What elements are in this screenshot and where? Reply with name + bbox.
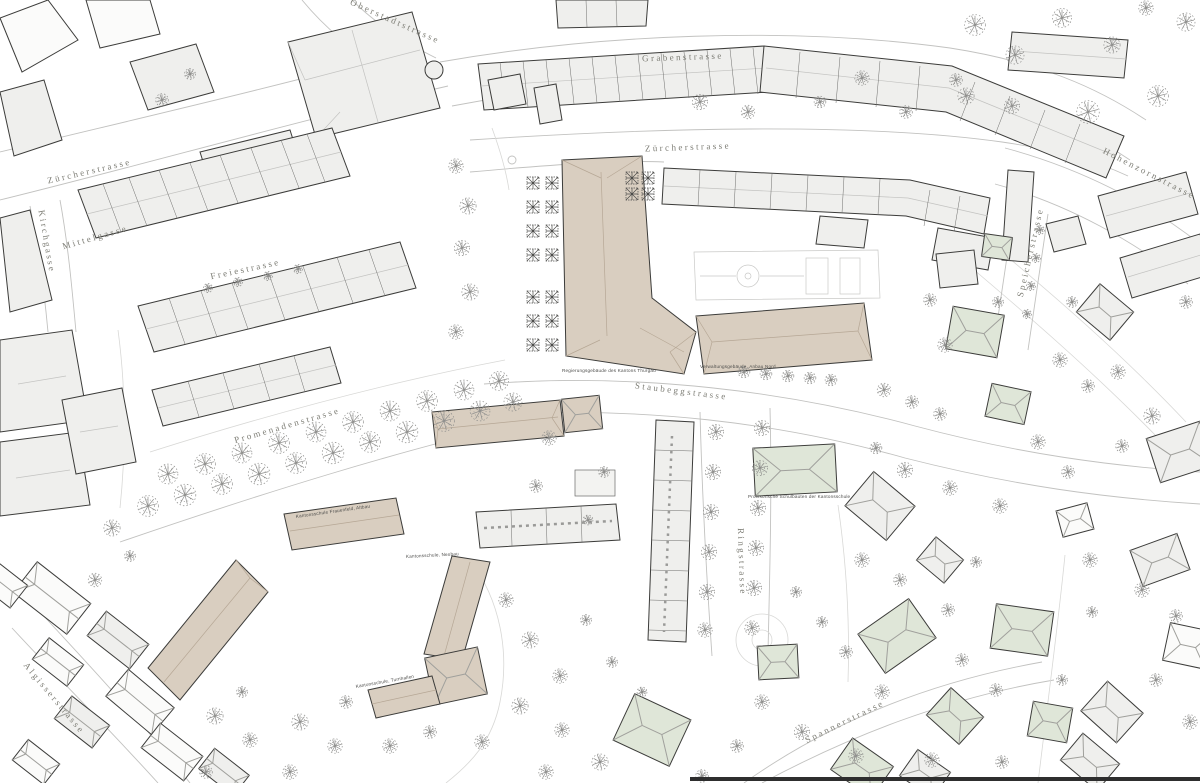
tree-icon (1087, 607, 1098, 618)
tree-icon (934, 408, 947, 421)
tree-icon (449, 159, 463, 173)
school-building (476, 504, 620, 548)
tree-icon (530, 480, 543, 493)
tree-icon (906, 396, 919, 409)
tree-icon (1180, 296, 1193, 309)
tree-icon (581, 615, 592, 626)
tree-icon (158, 464, 178, 484)
tree-icon (539, 765, 553, 779)
tree-icon (343, 412, 364, 433)
street-label-spannerstrasse: Spannerstrasse (803, 698, 886, 745)
tree-icon (104, 520, 120, 536)
tree-icon (1062, 466, 1075, 479)
tree-icon (243, 733, 257, 747)
tree-icon (125, 551, 136, 562)
tree-icon (877, 383, 891, 397)
tree-icon (1031, 435, 1045, 449)
school-building (148, 560, 268, 700)
tree-icon (269, 433, 290, 454)
tree-icon (897, 462, 912, 477)
tree-icon (701, 544, 716, 559)
tree-icon (607, 657, 618, 668)
tree-icon (195, 454, 216, 475)
tree-icon (499, 593, 513, 607)
tree-icon (1116, 440, 1129, 453)
tree-icon (174, 484, 196, 506)
tree-icon (207, 708, 223, 724)
tree-icon (870, 442, 882, 454)
tree-icon (380, 401, 400, 421)
tree-icon (782, 370, 794, 382)
tree-icon (1150, 674, 1163, 687)
tree-icon (956, 654, 969, 667)
caption-regierungsgebaeude: Regierungsgebäude des Kantons Thurgau (562, 368, 656, 373)
tree-icon (383, 739, 397, 753)
pavilion-building (753, 444, 837, 496)
tree-icon (993, 297, 1004, 308)
school-building (284, 498, 404, 550)
tree-icon (396, 421, 418, 443)
east-quarter (613, 172, 1200, 783)
garden-parterre (694, 250, 880, 300)
site-plan: Oberstadtstrasse Grabenstrasse Zürcherst… (0, 0, 1200, 783)
tree-icon (741, 105, 755, 119)
tree-icon (340, 696, 353, 709)
tree-icon (360, 432, 381, 453)
church-apse (425, 61, 443, 79)
graben-row-buildings (478, 0, 1128, 178)
tree-icon (322, 442, 344, 464)
tree-icon (1067, 297, 1078, 308)
street-label-staubeggstrasse: Staubeggstrasse (634, 380, 728, 401)
tree-icon (965, 15, 986, 36)
tree-icon (1139, 1, 1153, 15)
tree-icon (755, 695, 769, 709)
tree-icon (454, 240, 469, 255)
tree-icon (417, 391, 438, 412)
tree-icon (490, 372, 509, 391)
tree-icon (306, 422, 326, 442)
caption-verwaltungsgebaeude: Verwaltungsgebäude, Anbau Nord (700, 364, 776, 369)
tree-icon (475, 735, 489, 749)
tree-icon (699, 584, 714, 599)
tree-icon (88, 573, 102, 587)
old-town-buildings (0, 0, 443, 516)
school-building (432, 400, 564, 448)
tree-icon (817, 617, 828, 628)
tree-icon (703, 504, 718, 519)
tree-icon (1170, 610, 1183, 623)
tree-icon (943, 481, 957, 495)
tree-icon (286, 453, 307, 474)
tree-icon (1023, 310, 1032, 319)
tree-icon (804, 372, 816, 384)
tree-icon (522, 632, 538, 648)
tree-icon (748, 540, 763, 555)
tree-icon (894, 574, 907, 587)
tree-icon (1057, 675, 1068, 686)
tree-icon (449, 325, 463, 339)
traffic-island (508, 156, 516, 164)
tree-icon (692, 94, 707, 109)
plan-border-bar (690, 777, 1200, 781)
tree-icon (460, 198, 476, 214)
tree-icon (1083, 553, 1097, 567)
caption-provisorium: Provisorische Schulbauten der Kantonssch… (748, 494, 851, 499)
tree-icon (454, 380, 474, 400)
street-label-zuercherstrasse: Zürcherstrasse (645, 141, 731, 154)
tree-icon (990, 684, 1003, 697)
tree-icon (993, 499, 1007, 513)
tree-icon (791, 587, 802, 598)
tree-icon (237, 687, 248, 698)
tree-icon (760, 368, 772, 380)
tree-icon (924, 294, 937, 307)
building (0, 0, 78, 72)
tree-icon (283, 765, 297, 779)
tree-icon (840, 646, 853, 659)
tree-icon (731, 740, 744, 753)
tree-icon (138, 496, 159, 517)
tree-icon (745, 621, 759, 635)
zuercherstrasse-south-row (662, 168, 1034, 270)
tree-icon (592, 754, 608, 770)
tree-icon (232, 443, 252, 463)
tree-icon (512, 698, 528, 714)
tree-icon (705, 464, 720, 479)
tree-icon (1135, 583, 1149, 597)
tree-icon (1144, 408, 1160, 424)
tree-icon (875, 685, 889, 699)
street-label-ringstrasse: Ringstrasse (736, 528, 748, 596)
tree-icon (942, 604, 955, 617)
tree-icon (1082, 380, 1095, 393)
tree-icon (971, 557, 982, 568)
site-plan-canvas: Oberstadtstrasse Grabenstrasse Zürcherst… (0, 0, 1200, 783)
tree-icon (424, 726, 437, 739)
tree-icon (292, 714, 308, 730)
tree-icon (708, 424, 723, 439)
tree-icon (855, 553, 869, 567)
tree-icon (637, 687, 647, 697)
tree-icon (1053, 9, 1072, 28)
tree-icon (462, 284, 478, 300)
tree-icon (248, 463, 270, 485)
tree-icon (996, 756, 1009, 769)
tree-icon (1177, 13, 1195, 31)
tree-icon (1183, 715, 1197, 729)
tree-icon (825, 374, 837, 386)
tree-icon (553, 669, 567, 683)
tree-icon (1111, 365, 1125, 379)
tree-icon (750, 500, 765, 515)
tree-icon (328, 739, 342, 753)
tree-icon (212, 474, 233, 495)
tree-icon (1148, 86, 1169, 107)
tree-icon (555, 723, 569, 737)
tree-icon (1053, 353, 1067, 367)
